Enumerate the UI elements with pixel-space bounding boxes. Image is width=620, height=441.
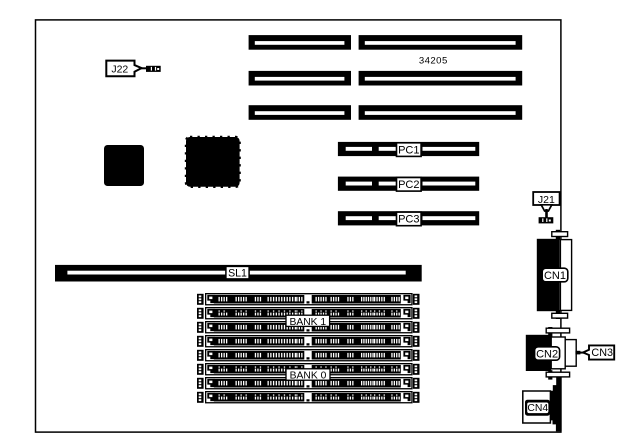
- svg-text:SL1: SL1: [228, 268, 247, 280]
- svg-text:34205: 34205: [419, 55, 448, 66]
- svg-text:PC3: PC3: [398, 214, 419, 226]
- svg-text:BANK 0: BANK 0: [290, 370, 327, 381]
- svg-text:CN3: CN3: [591, 347, 613, 359]
- svg-text:BANK 1: BANK 1: [289, 317, 326, 328]
- svg-text:J22: J22: [111, 63, 128, 75]
- svg-text:CN1: CN1: [544, 270, 566, 282]
- svg-text:CN2: CN2: [536, 348, 558, 360]
- svg-text:CN4: CN4: [527, 403, 548, 414]
- svg-text:J21: J21: [538, 194, 555, 206]
- svg-text:PC1: PC1: [398, 144, 419, 156]
- svg-text:PC2: PC2: [398, 179, 419, 191]
